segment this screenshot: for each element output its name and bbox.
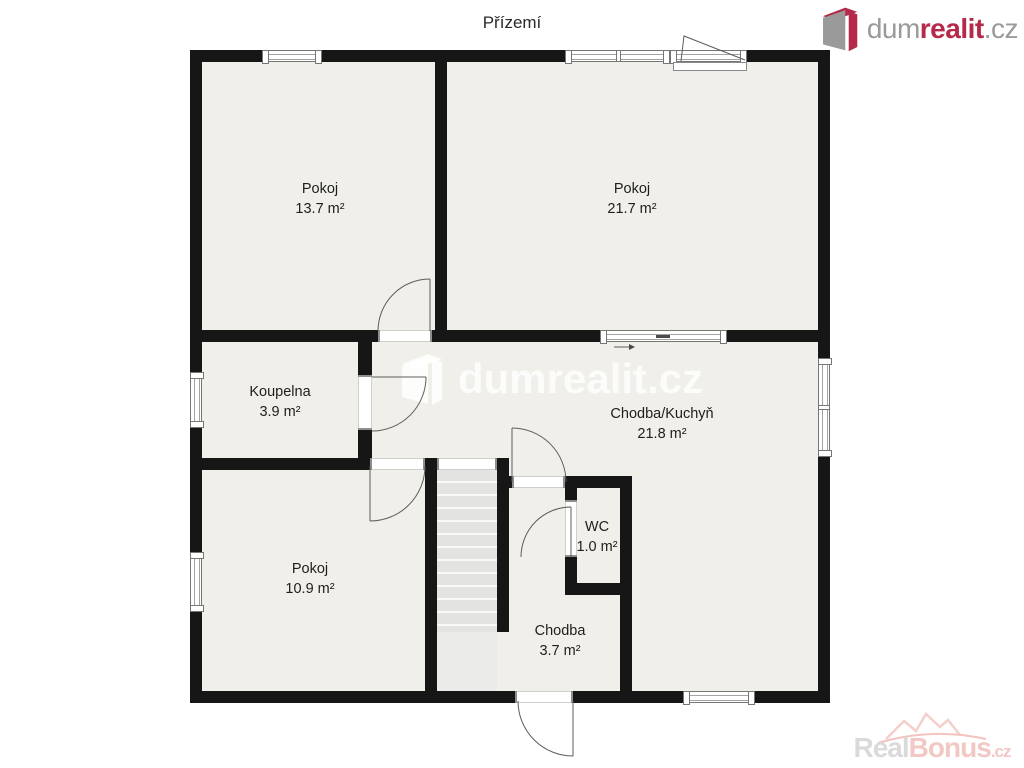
room-area: 3.9 m² (259, 402, 300, 422)
wall-segment (565, 488, 577, 500)
room-label-chodba: Chodba 3.7 m² (535, 621, 586, 661)
wall-segment (727, 330, 818, 342)
wall-segment (818, 457, 830, 703)
realbonus-watermark: RealBonus.cz (852, 709, 1012, 764)
floor-title: Přízemí (483, 13, 542, 33)
wall-segment (358, 342, 372, 375)
window (683, 691, 755, 703)
wall-segment (503, 476, 512, 488)
realbonus-suffix: .cz (991, 742, 1011, 761)
center-watermark: dumrealit.cz (400, 352, 703, 406)
door-opening (512, 476, 565, 488)
window-mullion (818, 405, 830, 410)
wall-segment (565, 583, 620, 595)
wall-segment (432, 330, 600, 342)
wall-segment (358, 430, 372, 458)
room-area: 10.9 m² (285, 579, 334, 599)
window-french (670, 50, 747, 62)
sliding-door-handle (656, 335, 670, 338)
room-label-wc: WC 1.0 m² (576, 517, 617, 557)
window-sill (673, 62, 747, 71)
room-name: Koupelna (249, 382, 310, 402)
door-opening (565, 500, 577, 557)
room-label-chodba-kuchyn: Chodba/Kuchyň 21.8 m² (610, 404, 713, 444)
stairs-opening (437, 458, 497, 470)
window (190, 372, 202, 428)
window (565, 50, 670, 62)
room-area: 1.0 m² (576, 537, 617, 557)
wall-segment (435, 62, 447, 330)
wall-segment (202, 458, 370, 470)
entrance-door-arc (518, 701, 573, 756)
logo-suffix: .cz (984, 13, 1018, 44)
door-opening (378, 330, 432, 342)
room-name: WC (585, 517, 609, 537)
window (262, 50, 322, 62)
room-label-pokoj-3: Pokoj 10.9 m² (285, 559, 334, 599)
wall-segment (190, 50, 202, 372)
realbonus-watermark-text: RealBonus.cz (852, 732, 1012, 764)
wall-segment (202, 330, 378, 342)
window (818, 358, 830, 457)
dumrealit-logo-text: dumrealit.cz (867, 13, 1018, 45)
logo-prefix: dum (867, 13, 920, 44)
realbonus-prefix: Real (854, 732, 909, 763)
wall-segment (322, 50, 565, 62)
staircase-landing (437, 632, 497, 691)
door-opening (370, 458, 425, 470)
sliding-door (600, 330, 727, 342)
room-name: Chodba (535, 621, 586, 641)
room-name: Pokoj (614, 179, 650, 199)
floorplan-page: Přízemí dumrealit.cz dumrealit.cz (0, 0, 1024, 768)
wall-segment (425, 458, 437, 703)
realbonus-highlight: Bonus (909, 732, 991, 763)
window (190, 552, 202, 612)
room-area: 21.7 m² (607, 199, 656, 219)
center-watermark-text: dumrealit.cz (458, 355, 703, 403)
room-area: 3.7 m² (539, 641, 580, 661)
room-name: Pokoj (302, 179, 338, 199)
wall-segment (190, 428, 202, 552)
room-name: Chodba/Kuchyň (610, 404, 713, 424)
room-label-koupelna: Koupelna 3.9 m² (249, 382, 310, 422)
room-name: Pokoj (292, 559, 328, 579)
wall-segment (565, 476, 632, 488)
room-label-pokoj-1: Pokoj 13.7 m² (295, 179, 344, 219)
wall-segment (190, 612, 202, 703)
staircase (437, 470, 497, 632)
dumrealit-logo-icon (823, 4, 859, 54)
door-opening (358, 375, 372, 430)
center-watermark-icon (400, 352, 446, 406)
wall-segment (190, 691, 515, 703)
wall-segment (818, 50, 830, 358)
room-area: 21.8 m² (637, 424, 686, 444)
logo-highlight: realit (920, 13, 984, 44)
window-mullion (616, 50, 621, 62)
wall-segment (620, 488, 632, 703)
entrance-door-opening (515, 691, 573, 703)
dumrealit-logo: dumrealit.cz (823, 4, 1018, 54)
room-label-pokoj-2: Pokoj 21.7 m² (607, 179, 656, 219)
room-area: 13.7 m² (295, 199, 344, 219)
